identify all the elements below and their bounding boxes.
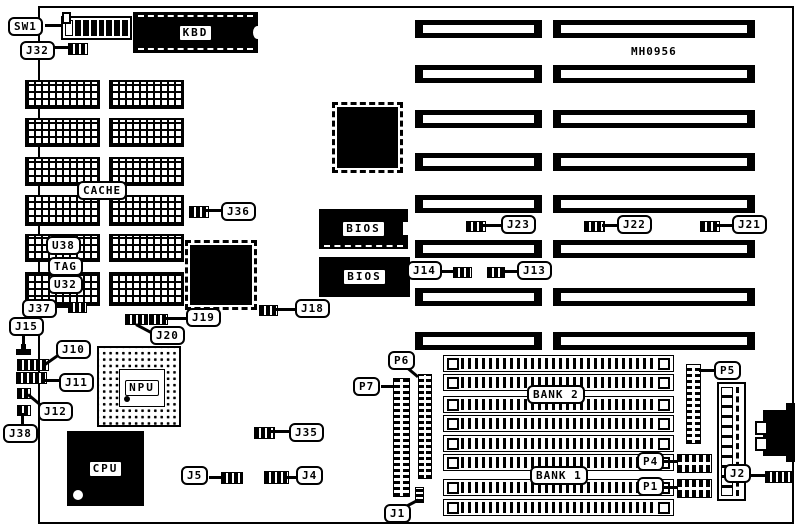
simm-latch <box>658 502 670 514</box>
expansion-slot <box>553 288 755 306</box>
dip-switch-position <box>114 20 120 36</box>
label-j32: J32 <box>20 41 55 60</box>
cpu-pin1-dot <box>73 490 83 500</box>
jumper-j38 <box>17 405 31 416</box>
simm-latch <box>447 502 459 514</box>
expansion-slot <box>553 332 755 350</box>
jumper-j5 <box>221 472 243 484</box>
expansion-slot <box>415 110 542 128</box>
leader-j36 <box>205 209 222 212</box>
dip-switch-position <box>122 20 128 36</box>
chip-bios-notch <box>403 222 408 235</box>
dip-switch-position <box>91 20 97 36</box>
label-j37: J37 <box>22 299 57 318</box>
simm-latch <box>447 399 459 411</box>
dip-switch-sw1 <box>61 16 132 40</box>
chip-kbd-dashes <box>138 15 253 17</box>
label-j18: J18 <box>295 299 330 318</box>
leader-j11 <box>44 379 60 382</box>
npu-pin1-dot <box>124 396 130 402</box>
leader-j5 <box>209 476 222 479</box>
label-j11: J11 <box>59 373 94 392</box>
chip-bios-dashes <box>324 245 403 247</box>
connector-p4 <box>677 454 712 473</box>
label-tag: TAG <box>48 257 83 276</box>
label-j13: J13 <box>517 261 552 280</box>
expansion-slot <box>553 20 755 38</box>
expansion-slot <box>553 195 755 213</box>
label-bank2: BANK 2 <box>527 385 585 404</box>
simm-socket <box>443 355 674 372</box>
label-p5: P5 <box>714 361 741 380</box>
header-p6 <box>418 374 432 479</box>
label-u38: U38 <box>46 236 81 255</box>
dip-switch-position <box>106 20 112 36</box>
expansion-slot <box>415 153 542 171</box>
simm-latch <box>447 377 459 389</box>
label-j4: J4 <box>296 466 323 485</box>
leader-j2 <box>750 474 766 477</box>
simm-latch <box>447 418 459 430</box>
label-j35: J35 <box>289 423 324 442</box>
label-p7: P7 <box>353 377 380 396</box>
npu-socket: NPU <box>97 346 181 427</box>
leader-sw1 <box>45 24 62 27</box>
label-u32: U32 <box>48 275 83 294</box>
simm-latch <box>658 358 670 370</box>
simm-latch <box>447 457 459 469</box>
simm-latch <box>658 438 670 450</box>
header-j10 <box>17 359 49 371</box>
label-j2: J2 <box>724 464 751 483</box>
expansion-slot <box>415 65 542 83</box>
expansion-slot <box>553 65 755 83</box>
leader-j13 <box>502 270 518 273</box>
expansion-slot <box>415 240 542 258</box>
dip-switch-position <box>75 20 81 36</box>
qfp-chip <box>337 107 398 168</box>
label-p1: P1 <box>637 477 664 496</box>
leader-j18 <box>275 308 296 311</box>
jumper-j14 <box>453 267 472 278</box>
label-j12: J12 <box>38 402 73 421</box>
leader-p5 <box>699 369 715 372</box>
label-j21: J21 <box>732 215 767 234</box>
label-j1: J1 <box>384 504 411 523</box>
simm-latch <box>658 418 670 430</box>
motherboard-diagram: SW1 J32 KBD CACHE U38 TAG U32 J37 J15 J1… <box>0 0 799 532</box>
label-j5: J5 <box>181 466 208 485</box>
label-npu: NPU <box>125 380 159 396</box>
simm-latch <box>447 438 459 450</box>
leader-j19 <box>165 317 187 320</box>
cache-chip <box>109 80 184 109</box>
keyboard-connector-pin <box>755 437 768 451</box>
chip-kbd: KBD <box>133 12 258 53</box>
label-j14: J14 <box>407 261 442 280</box>
connector-j15 <box>16 349 31 355</box>
dip-switch-position <box>99 20 105 36</box>
qfp-chip <box>190 245 252 305</box>
keyboard-connector-pin <box>755 421 768 435</box>
label-j22: J22 <box>617 215 652 234</box>
expansion-slot <box>415 195 542 213</box>
chip-bios-bottom: BIOS <box>319 257 410 297</box>
jumper-j37 <box>68 302 87 313</box>
simm-socket <box>443 415 674 432</box>
simm-socket <box>443 499 674 516</box>
dip-switch-position <box>83 20 89 36</box>
cache-chip <box>109 272 184 306</box>
label-bios-bottom: BIOS <box>343 269 386 285</box>
header-j11 <box>16 372 47 384</box>
label-sw1: SW1 <box>8 17 43 36</box>
label-bank1: BANK 1 <box>530 466 588 485</box>
leader-p7 <box>381 385 394 388</box>
cache-chip <box>25 80 100 109</box>
chip-kbd-notch <box>253 26 262 39</box>
jumper-j36 <box>189 206 209 218</box>
expansion-slot <box>415 288 542 306</box>
label-j38: J38 <box>3 424 38 443</box>
simm-latch <box>447 358 459 370</box>
leader-j21 <box>717 224 733 227</box>
simm-latch <box>658 399 670 411</box>
header-p7 <box>393 378 410 497</box>
simm-latch <box>658 377 670 389</box>
connector-p1 <box>677 479 712 498</box>
keyboard-connector <box>786 403 795 462</box>
label-j23: J23 <box>501 215 536 234</box>
label-j15: J15 <box>9 317 44 336</box>
jumper-j32 <box>68 43 88 55</box>
dip-switch-position <box>65 20 73 36</box>
part-number: MH0956 <box>631 45 677 58</box>
label-bios-top: BIOS <box>342 221 385 237</box>
simm-socket <box>443 435 674 452</box>
cpu-chip: CPU <box>67 431 144 506</box>
label-j36: J36 <box>221 202 256 221</box>
simm-latch <box>447 482 459 494</box>
label-j10: J10 <box>56 340 91 359</box>
label-p6: P6 <box>388 351 415 370</box>
cache-chip <box>109 234 184 262</box>
edge-connector <box>717 382 746 501</box>
leader-j23 <box>483 224 502 227</box>
jumper-j35 <box>254 427 275 439</box>
cache-chip <box>109 118 184 147</box>
expansion-slot <box>553 110 755 128</box>
chip-kbd-dashes <box>138 48 253 50</box>
expansion-slot <box>553 153 755 171</box>
npu-socket-center: NPU <box>119 369 165 407</box>
chip-bios-top: BIOS <box>319 209 408 249</box>
label-j20: J20 <box>150 326 185 345</box>
cache-chip <box>25 118 100 147</box>
expansion-slot <box>553 240 755 258</box>
label-cpu: CPU <box>89 461 123 477</box>
expansion-slot <box>415 332 542 350</box>
leader-j32 <box>54 46 69 49</box>
leader-p1 <box>662 486 678 489</box>
expansion-slot <box>415 20 542 38</box>
jumper-j2 <box>765 471 793 483</box>
leader-j22 <box>602 224 618 227</box>
header-p5 <box>686 364 701 444</box>
leader-p4 <box>662 460 678 463</box>
label-kbd: KBD <box>179 25 213 41</box>
label-j19: J19 <box>186 308 221 327</box>
label-cache: CACHE <box>77 181 127 200</box>
label-p4: P4 <box>637 452 664 471</box>
leader-j35 <box>271 430 290 433</box>
